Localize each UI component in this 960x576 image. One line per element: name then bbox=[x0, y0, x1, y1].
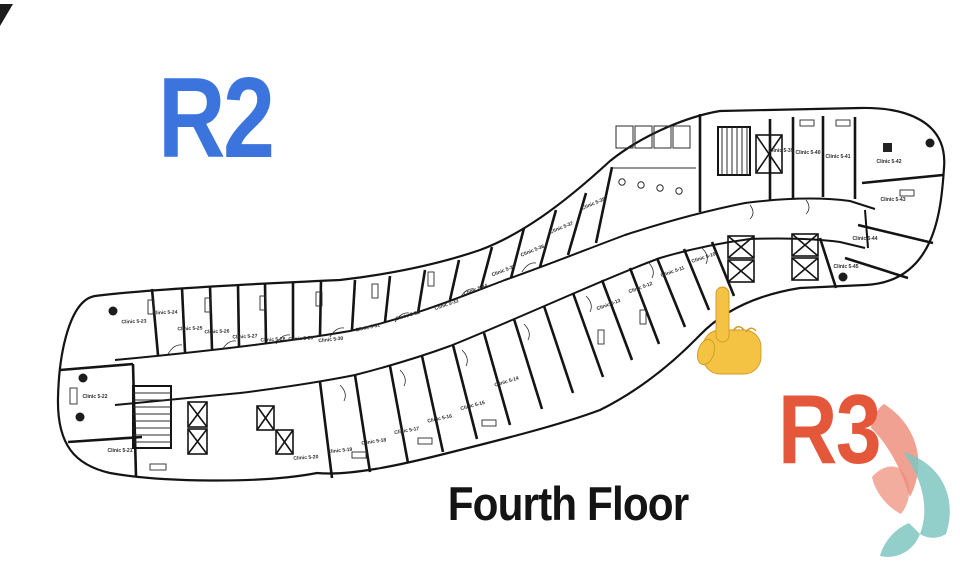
room-label: Clinic 5-42 bbox=[876, 159, 901, 165]
slide: Clinic 5-23Clinic 5-24Clinic 5-25Clinic … bbox=[0, 0, 960, 576]
room-label: Clinic 5-26 bbox=[204, 329, 229, 336]
room-label: Clinic 5-41 bbox=[825, 154, 850, 160]
floor-caption: Fourth Floor bbox=[424, 480, 712, 527]
room-label: Clinic 5-44 bbox=[852, 236, 877, 242]
room-label: Clinic 5-24 bbox=[152, 310, 177, 317]
room-label: Clinic 5-32 bbox=[395, 310, 421, 323]
toilet-stalls-icon bbox=[612, 126, 696, 194]
room-label: Clinic 5-21 bbox=[107, 448, 132, 454]
room-label: Clinic 5-23 bbox=[121, 319, 146, 326]
room-label: Clinic 5-11 bbox=[660, 265, 686, 279]
logo-swirl bbox=[871, 404, 950, 557]
room-label: Clinic 5-29 bbox=[288, 335, 314, 343]
room-label: Clinic 5-34 bbox=[463, 283, 489, 297]
room-label: Clinic 5-45 bbox=[833, 264, 858, 270]
room-label: Clinic 5-19 bbox=[327, 447, 353, 456]
room-label: Clinic 5-43 bbox=[880, 197, 905, 203]
room-label: Clinic 5-17 bbox=[394, 426, 420, 436]
room-label: Clinic 5-15 bbox=[460, 400, 486, 412]
room-label: Clinic 5-40 bbox=[795, 150, 820, 156]
room-label: Clinic 5-16 bbox=[427, 413, 453, 424]
room-label: Clinic 5-22 bbox=[82, 394, 107, 400]
room-label: Clinic 5-25 bbox=[177, 326, 202, 333]
room-label: Clinic 5-33 bbox=[434, 298, 460, 312]
room-label: Clinic 5-28 bbox=[260, 336, 286, 343]
room-label: Clinic 5-10 bbox=[691, 251, 717, 265]
room-label: Clinic 5-20 bbox=[293, 454, 319, 462]
room-label: Clinic 5-31 bbox=[355, 322, 381, 333]
room-label: Clinic 5-27 bbox=[232, 333, 258, 340]
room-label: Clinic 5-39 bbox=[768, 148, 793, 154]
zone-label-r2: R2 bbox=[158, 62, 273, 176]
zone-label-r3: R3 bbox=[778, 380, 880, 478]
room-label: Clinic 5-30 bbox=[318, 336, 344, 345]
